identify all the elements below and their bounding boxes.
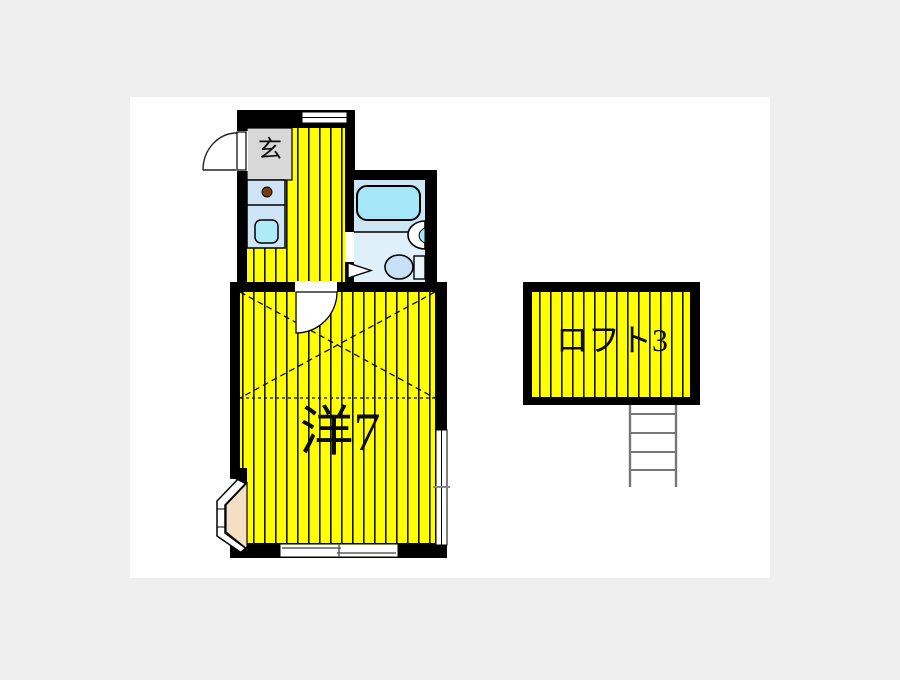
toilet-tank [414,256,425,279]
top-window [302,112,347,123]
entrance-label: 玄 [258,136,282,163]
kitchen-sink-icon [255,220,278,243]
main-room-block: 洋7 [217,281,450,558]
bathroom-block [345,170,437,292]
main-room-label: 洋7 [300,402,381,462]
room-door-gap [295,281,337,293]
toilet-icon [385,255,425,279]
floorplan-canvas: 玄 [0,0,900,675]
sliding-window-right [433,430,450,545]
loft-label: ロフト3 [556,322,668,358]
stove-burner-icon [262,187,272,197]
sliding-window-bottom [280,544,398,557]
kitchen-counter [247,180,285,248]
bathroom-door-gap [345,232,354,262]
bathtub-icon [357,186,420,220]
entrance-door-leaf [237,132,246,170]
floorplan-page: 玄 [0,0,900,675]
toilet-bowl [385,255,413,279]
